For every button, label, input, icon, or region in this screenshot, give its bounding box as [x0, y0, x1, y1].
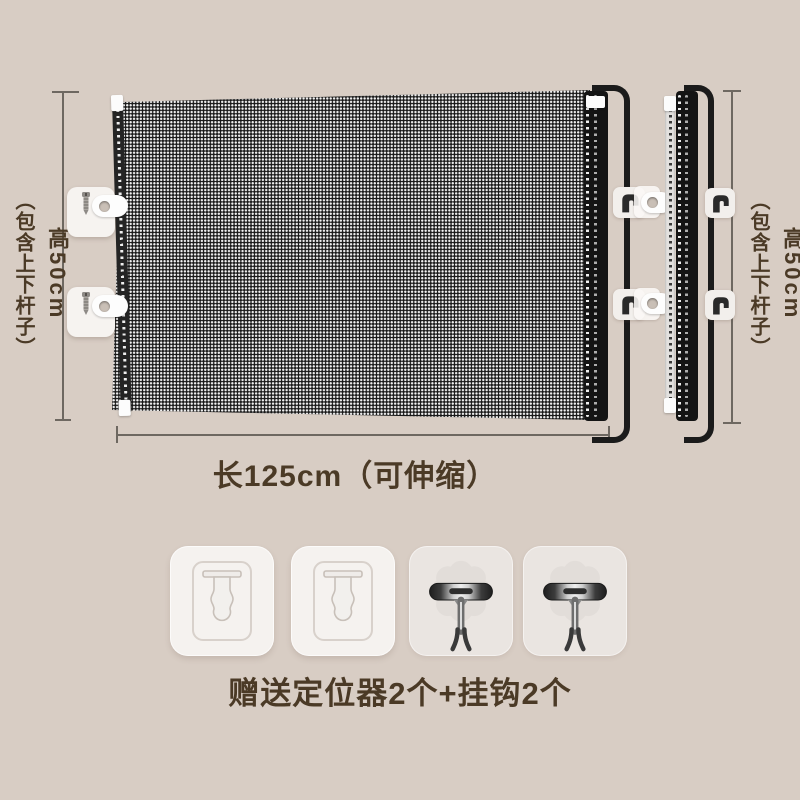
zipper-dots — [669, 103, 672, 407]
gift-label: 赠送定位器2个+挂钩2个 — [0, 668, 800, 713]
keyhole-mount-icon — [190, 559, 254, 643]
right-height-value: 高50cm — [776, 160, 800, 388]
folded-zipper-strip — [665, 99, 675, 411]
accessory-hook-2 — [523, 546, 627, 656]
accessory-positioner-2 — [291, 546, 395, 656]
accessory-positioner-1 — [170, 546, 274, 656]
keyhole-hole — [647, 197, 658, 208]
keyhole-hole — [99, 301, 110, 312]
right-height-note: （包含上下杆子） — [744, 160, 773, 388]
keyhole-connector-left-top — [92, 195, 128, 217]
left-height-label: 高50cm （包含上下杆子） — [6, 165, 76, 383]
pull-handle-main — [592, 85, 630, 443]
adhesive-hook-icon — [411, 547, 511, 655]
bottom-dimension-line — [117, 434, 609, 436]
roller-dots — [586, 95, 589, 417]
hook-clip-pad — [705, 188, 735, 218]
folded-cap-top — [664, 96, 676, 111]
product-infographic: 高50cm （包含上下杆子） 高50cm （包含上下杆子） — [0, 0, 800, 800]
keyhole-hole — [99, 201, 110, 212]
adhesive-hook-icon — [525, 547, 625, 655]
screw-icon-top — [80, 192, 92, 216]
left-dimension-cap-top — [52, 91, 79, 93]
right-dimension-line — [731, 91, 733, 423]
hook-clip-pad — [705, 290, 735, 320]
right-dimension-cap-bottom — [723, 422, 741, 424]
rod-cap-bottom — [118, 400, 130, 416]
keyhole-connector-left-bottom — [92, 295, 128, 317]
left-height-note: （包含上下杆子） — [9, 165, 38, 383]
roller-dots — [678, 95, 681, 417]
rod-cap-top — [111, 95, 123, 111]
clip-hook-icon — [709, 294, 732, 317]
left-dimension-cap-bottom — [55, 419, 71, 421]
right-dimension-cap-top — [723, 90, 741, 92]
folded-cap-bottom — [664, 398, 676, 413]
mesh-panel — [112, 90, 590, 424]
keyhole-mount-icon — [311, 559, 375, 643]
length-label: 长125cm（可伸缩） — [100, 451, 610, 495]
bottom-dimension-cap-left — [116, 426, 118, 443]
keyhole-hole — [647, 298, 658, 309]
accessory-hook-1 — [409, 546, 513, 656]
pull-handle-folded — [684, 85, 714, 443]
right-height-label: 高50cm （包含上下杆子） — [741, 160, 800, 388]
clip-hook-icon — [709, 192, 732, 215]
screw-icon-bottom — [80, 292, 92, 316]
